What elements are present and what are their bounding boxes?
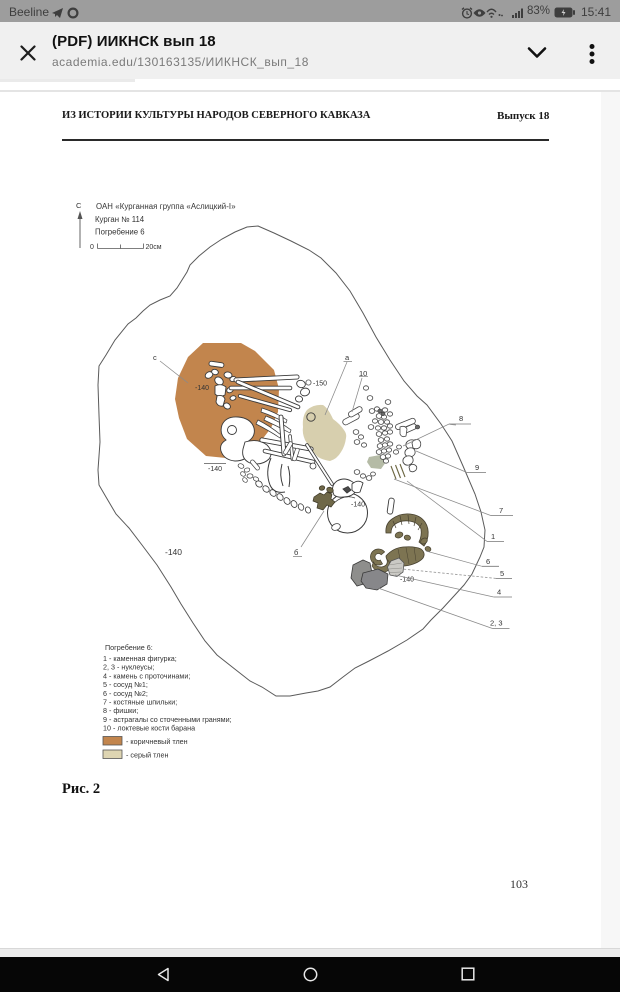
svg-text:Курган № 114: Курган № 114 [95, 215, 145, 224]
svg-text:2, 3 - нуклеусы;: 2, 3 - нуклеусы; [103, 663, 155, 672]
svg-text:- коричневый тлен: - коричневый тлен [126, 737, 188, 746]
svg-text:-140: -140 [351, 502, 365, 509]
svg-text:4: 4 [497, 588, 501, 597]
svg-text:а: а [345, 353, 350, 362]
svg-text:6: 6 [486, 557, 490, 566]
svg-text:-140: -140 [208, 466, 222, 473]
svg-text:10 - локтевые кости барана: 10 - локтевые кости барана [103, 724, 195, 733]
svg-text:5 - сосуд №1;: 5 - сосуд №1; [103, 680, 148, 689]
svg-text:1 - каменная фигурка;: 1 - каменная фигурка; [103, 654, 177, 663]
svg-text:ОАН «Курганная группа «Аслицки: ОАН «Курганная группа «Аслицкий-I» [96, 202, 236, 211]
svg-text:- серый тлен: - серый тлен [126, 751, 168, 760]
svg-text:с: с [153, 353, 157, 362]
svg-text:9: 9 [475, 463, 479, 472]
svg-text:5: 5 [500, 569, 504, 578]
svg-text:-140: -140 [165, 547, 182, 557]
svg-text:-150: -150 [313, 381, 327, 388]
svg-text:2, 3: 2, 3 [490, 619, 503, 628]
svg-text:б: б [294, 548, 298, 557]
svg-text:1: 1 [491, 532, 495, 541]
svg-text:Погребение 6:: Погребение 6: [105, 643, 153, 652]
svg-text:4 - камень с проточинами;: 4 - камень с проточинами; [103, 671, 190, 680]
svg-text:7 - костяные шпильки;: 7 - костяные шпильки; [103, 698, 177, 707]
svg-text:7: 7 [499, 506, 503, 515]
svg-text:20см: 20см [146, 244, 162, 251]
svg-text:6 - сосуд №2;: 6 - сосуд №2; [103, 689, 148, 698]
svg-text:Погребение 6: Погребение 6 [95, 228, 145, 237]
svg-text:9 - астрагалы со сточенными гр: 9 - астрагалы со сточенными гранями; [103, 715, 232, 724]
svg-text:0: 0 [90, 244, 94, 251]
svg-text:С: С [76, 201, 82, 210]
svg-text:8 - фишки;: 8 - фишки; [103, 706, 138, 715]
svg-text:-140: -140 [195, 385, 209, 392]
svg-text:8: 8 [459, 414, 463, 423]
